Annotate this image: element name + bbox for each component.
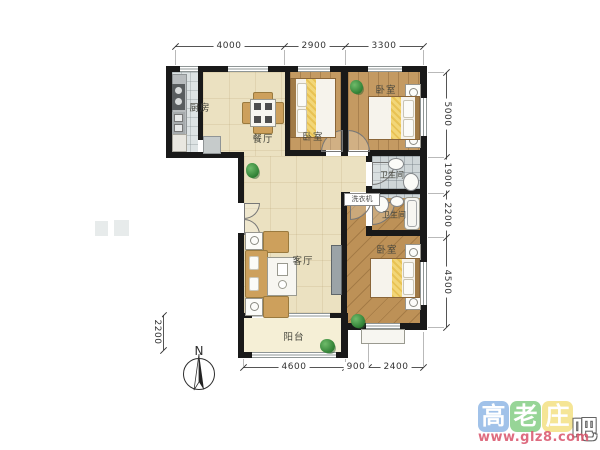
dim-ext	[284, 50, 285, 65]
dim-bottom-1: 4600	[279, 362, 310, 372]
bedroom3-bed	[370, 258, 420, 298]
armchair	[263, 296, 289, 318]
bathtub	[404, 197, 420, 230]
window-bedroom1	[298, 66, 330, 72]
burner-icon	[175, 87, 182, 94]
plant	[350, 80, 363, 94]
dim-ext	[428, 237, 444, 238]
pillow	[403, 119, 414, 137]
sofa	[245, 250, 268, 298]
dim-ext	[423, 332, 424, 367]
bed-accent	[391, 97, 401, 139]
sink-icon	[388, 158, 404, 170]
corridor-floor	[341, 156, 366, 192]
lamp-icon	[409, 298, 418, 307]
toilet-icon	[403, 173, 419, 191]
headboard	[415, 259, 419, 297]
pillow	[403, 262, 414, 278]
wall-bedroom1-bottom	[285, 150, 326, 156]
watermark-url: www.glz8.com	[478, 430, 590, 445]
bathtub-inner	[407, 200, 417, 227]
dim-ext	[345, 50, 346, 65]
kitchen-cabinet	[172, 134, 187, 152]
stove	[172, 84, 185, 110]
lamp-icon	[250, 302, 259, 311]
headboard	[291, 79, 296, 137]
tray-icon	[277, 263, 288, 276]
pillow	[403, 279, 414, 295]
window-bedroom2-right	[420, 98, 427, 136]
pillow	[297, 83, 307, 107]
window-dining	[228, 66, 268, 72]
table-setting-icon	[254, 116, 261, 123]
side-table	[245, 298, 263, 316]
plant	[351, 314, 365, 328]
dim-tick	[443, 324, 450, 331]
label-kitchen: 厨房	[189, 100, 210, 114]
fridge	[203, 136, 221, 154]
dim-bottom-2: 900	[344, 362, 369, 372]
sink-basin	[174, 114, 183, 122]
dim-top-2: 2900	[299, 41, 330, 51]
side-table	[245, 232, 263, 250]
sofa-cushion	[249, 277, 259, 291]
wall-bath2-bottom	[366, 230, 427, 236]
watermark-tile-3: 庄	[542, 401, 573, 432]
dim-ext	[428, 193, 444, 194]
headboard	[415, 97, 419, 139]
window-kitchen	[180, 66, 198, 72]
plant	[320, 339, 335, 353]
dim-tick	[420, 43, 427, 50]
label-bath2: 卫生间	[382, 210, 406, 221]
bed-accent	[392, 259, 402, 297]
table-setting-icon	[265, 116, 272, 123]
sink-icon	[390, 196, 404, 207]
lamp-icon	[250, 236, 259, 245]
dim-left-1: 2200	[152, 317, 162, 348]
tv-cabinet	[331, 245, 342, 295]
label-living: 客厅	[292, 253, 313, 267]
window-bedroom2-top	[368, 66, 402, 72]
sofa-cushion	[249, 256, 259, 270]
dim-right-3: 2200	[442, 200, 452, 231]
dim-ext	[423, 50, 424, 65]
teapot-icon	[278, 280, 287, 289]
compass-needle-icon	[190, 352, 208, 394]
wall-living-left	[238, 152, 244, 358]
dim-top-3: 3300	[369, 41, 400, 51]
window-balcony	[252, 352, 336, 358]
window-bedroom3-right	[420, 262, 427, 305]
lamp-icon	[409, 248, 418, 257]
dim-top-1: 4000	[214, 41, 245, 51]
dim-line-left	[163, 315, 164, 350]
table-setting-icon	[254, 103, 261, 110]
artifact-square	[114, 220, 129, 236]
pillow	[403, 100, 414, 118]
dim-right-2: 1900	[442, 160, 452, 191]
sink-basin	[174, 124, 183, 132]
plant	[246, 163, 259, 178]
dim-ext	[428, 157, 444, 158]
watermark-tile-1: 高	[478, 401, 509, 432]
label-bedroom2: 卧室	[375, 82, 396, 96]
label-bath1: 卫生间	[380, 170, 404, 181]
bay-window	[361, 329, 405, 344]
dim-right-1: 5000	[442, 99, 452, 130]
dim-bottom-3: 2400	[381, 362, 412, 372]
dim-right-4: 4500	[442, 267, 452, 298]
dim-ext	[175, 50, 176, 65]
dim-tick	[160, 347, 167, 354]
table-setting-icon	[265, 103, 272, 110]
watermark-tile-2: 老	[510, 401, 541, 432]
label-bedroom1: 卧室	[302, 129, 323, 143]
label-bedroom3: 卧室	[376, 242, 397, 256]
label-balcony: 阳台	[283, 329, 304, 343]
label-washer: 洗衣机	[344, 193, 380, 206]
dim-ext	[428, 327, 444, 328]
burner-icon	[175, 98, 182, 105]
kitchen-sink	[172, 112, 185, 134]
dim-ext	[243, 359, 244, 367]
artifact-square	[95, 221, 108, 236]
floorplan-canvas: 厨房 餐厅 卧室 卧室 卫生间 卫生间 卧室 客厅 阳台 洗衣机 4000 29…	[0, 0, 600, 450]
dining-table	[250, 99, 276, 127]
dim-ext	[428, 72, 444, 73]
label-dining: 餐厅	[252, 131, 273, 145]
bedroom2-bed	[368, 96, 420, 140]
